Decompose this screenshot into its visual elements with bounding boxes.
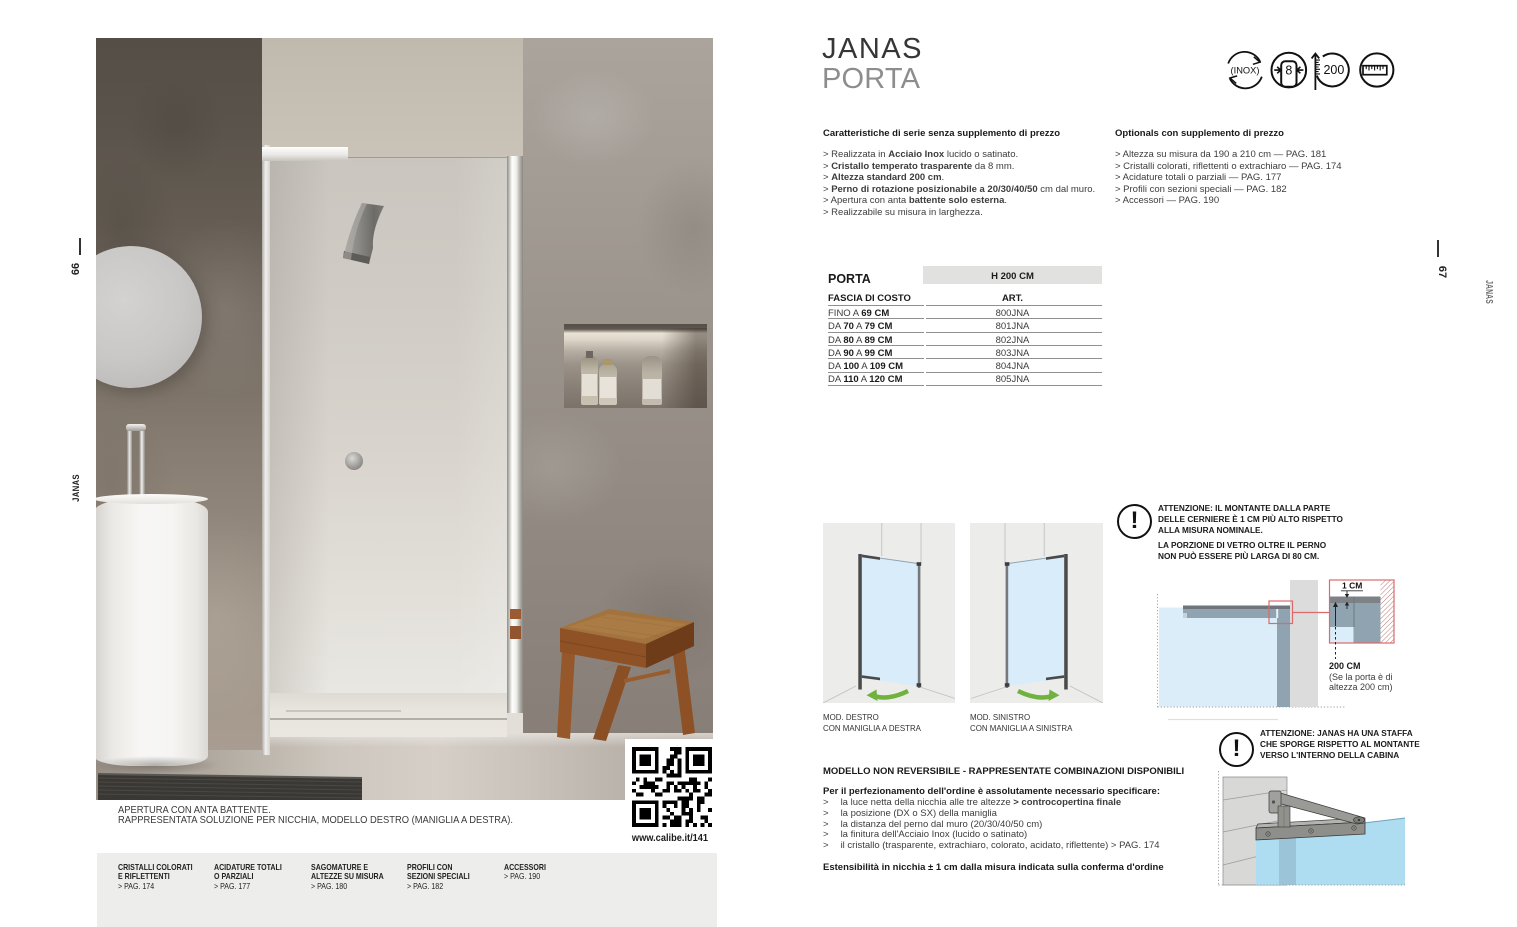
svg-text:(INOX): (INOX) xyxy=(1231,65,1260,75)
svg-text:8: 8 xyxy=(1285,64,1292,78)
svg-text:200: 200 xyxy=(1323,63,1344,77)
svg-text:1 CM: 1 CM xyxy=(1342,581,1362,591)
